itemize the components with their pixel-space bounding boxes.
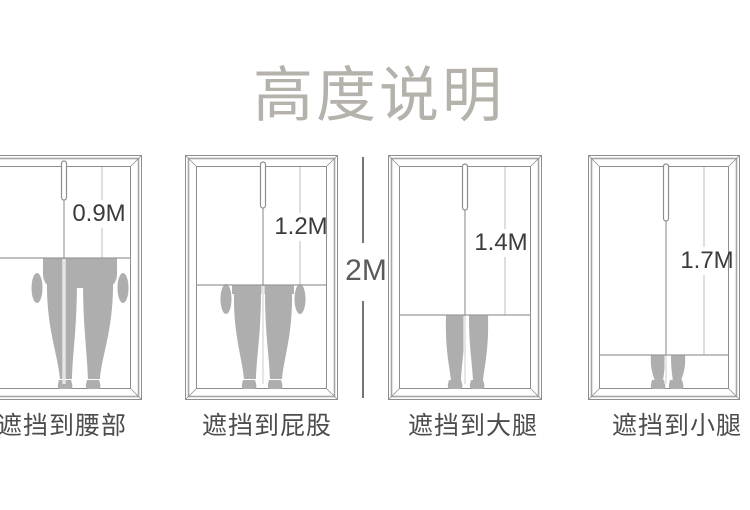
panel-caption-4: 遮挡到小腿 [612, 406, 742, 442]
panel-caption-3: 遮挡到大腿 [408, 406, 538, 442]
total-height-dimension-line-bottom [362, 301, 364, 398]
door-frame-graphic-1 [0, 155, 142, 400]
panel-4: 1.7M [588, 155, 740, 400]
panel-3: 1.4M [388, 155, 542, 400]
height-guide-illustration: 高度说明 0.9M 1.2M 1.4M 1.7M 遮挡到腰部 遮挡到屁股 遮挡到… [0, 0, 750, 510]
height-value-label: 1.7M [680, 249, 733, 273]
door-frame-graphic-4 [588, 155, 740, 400]
door-frame-graphic-2 [185, 155, 338, 400]
panel-caption-2: 遮挡到屁股 [202, 406, 332, 442]
total-height-label: 2M [345, 256, 387, 286]
height-value-label: 1.4M [474, 231, 527, 255]
total-height-dimension-line-top [362, 157, 364, 243]
panel-caption-1: 遮挡到腰部 [0, 406, 127, 442]
door-frame-graphic-3 [388, 155, 542, 400]
height-value-label: 1.2M [274, 215, 327, 239]
panel-2: 1.2M [185, 155, 338, 400]
page-title: 高度说明 [253, 47, 505, 134]
height-value-label: 0.9M [72, 202, 125, 226]
panel-1: 0.9M [0, 155, 142, 400]
